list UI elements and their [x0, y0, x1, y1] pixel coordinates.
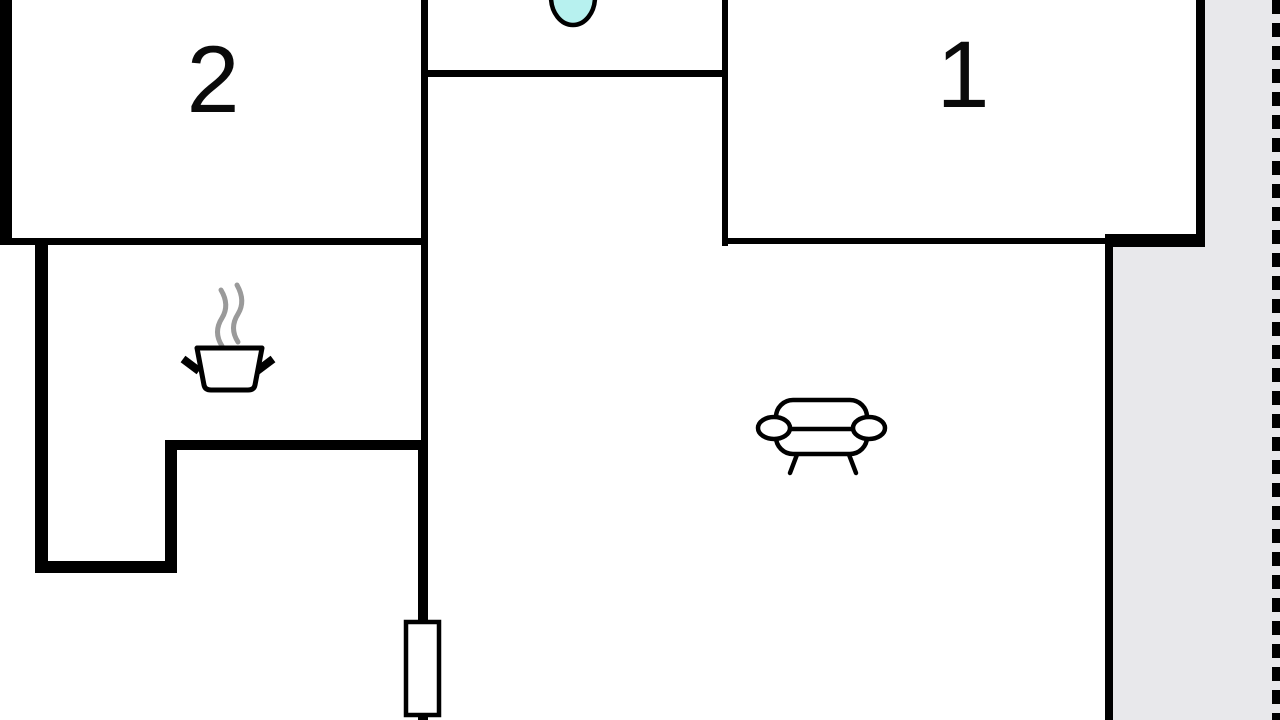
sofa-armrest [853, 417, 885, 439]
steam-icon [218, 290, 226, 346]
room-2-label: 2 [187, 27, 240, 133]
wall [421, 0, 428, 450]
pot-handle-left [183, 359, 199, 371]
wall [0, 0, 12, 245]
water-basin-icon [551, 0, 595, 25]
wall [722, 0, 728, 246]
wall [35, 561, 177, 573]
sofa-icon [758, 400, 885, 473]
wall [722, 238, 1113, 244]
sofa-armrest [758, 417, 790, 439]
floor-plan: 2 1 [0, 0, 1280, 720]
wall [1105, 245, 1113, 720]
wall [1196, 0, 1205, 247]
cooking-pot-icon [183, 285, 273, 390]
window-symbol [406, 622, 439, 715]
walls [0, 0, 1205, 720]
wall [418, 450, 428, 622]
wall [1105, 234, 1205, 247]
steam-icon [234, 285, 242, 342]
wall [165, 440, 177, 573]
wall [421, 70, 728, 77]
wall [0, 238, 428, 245]
room-1-label: 1 [937, 22, 990, 128]
wall [165, 440, 427, 450]
wall [35, 240, 48, 573]
pot-body [197, 348, 262, 390]
